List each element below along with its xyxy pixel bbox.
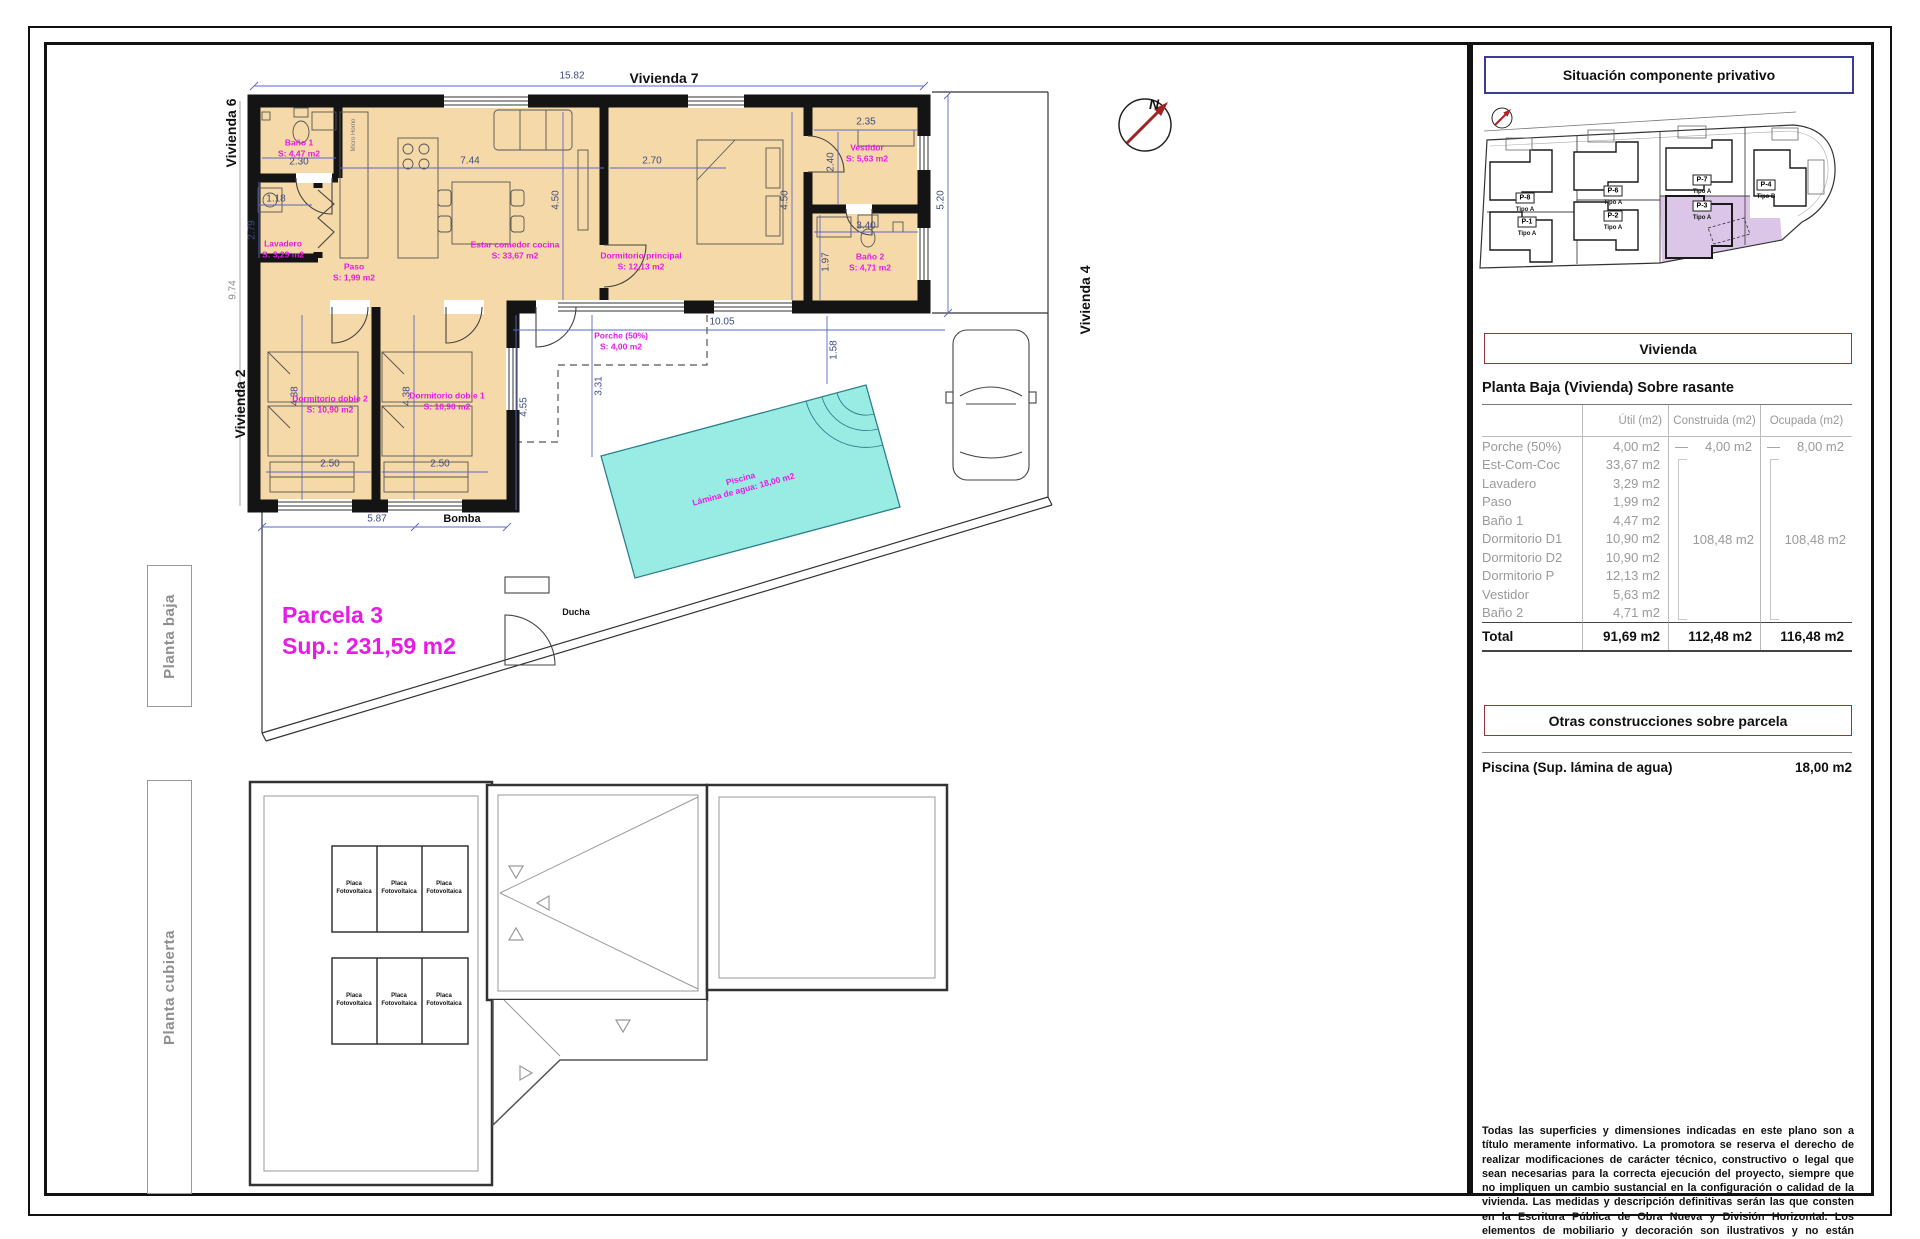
otras-title: Otras construcciones sobre parcela (1549, 713, 1788, 729)
table-row-label: Dormitorio D1 (1482, 530, 1582, 549)
table-header-util: Útil (m2) (1582, 405, 1668, 437)
vivienda-header: Vivienda (1484, 333, 1852, 364)
parcel-tipo-p3: Tipo A (1693, 215, 1711, 221)
pv-line2: Fotovoltaica (336, 1001, 371, 1007)
room-label-bano1: Baño 1S: 4,47 m2 (278, 137, 320, 158)
room-area: S: 33,67 m2 (492, 250, 539, 260)
room-label-porche: Porche (50%)S: 4,00 m2 (594, 330, 648, 351)
table-total-label: Total (1482, 622, 1582, 650)
room-name: Vestidor (850, 142, 884, 152)
pv-line1: Placa (391, 993, 407, 999)
roof-extension (493, 1000, 707, 1125)
pv-line2: Fotovoltaica (381, 889, 416, 895)
table-row-util: 1,99 m2 (1582, 493, 1668, 512)
label-vivienda-7: Vivienda 7 (629, 70, 698, 86)
room-name: Dormitorio doble 2 (292, 393, 368, 403)
room-area: S: 4,71 m2 (849, 262, 891, 272)
room-label-estar: Estar comedor cocinaS: 33,67 m2 (471, 239, 560, 260)
table-header-ocupada: Ocupada (m2) (1760, 405, 1852, 437)
table-row-util: 5,63 m2 (1582, 585, 1668, 604)
room-area: S: 4,00 m2 (600, 341, 642, 351)
room-label-bano2: Baño 2S: 4,71 m2 (849, 251, 891, 272)
ocupada-group-value: 108,48 m2 (1762, 532, 1846, 547)
vivienda-title: Vivienda (1639, 341, 1696, 357)
roof-plan (250, 782, 947, 1185)
table-row-label: Vestidor (1482, 585, 1582, 604)
dim-top: 15.82 (559, 71, 584, 82)
porche-construida: 4,00 m2 (1705, 439, 1752, 454)
planta-baja-tag: Planta baja (147, 565, 192, 707)
north-compass (1119, 99, 1171, 151)
otras-header: Otras construcciones sobre parcela (1484, 705, 1852, 736)
parcela-title: Parcela 3 (282, 602, 383, 629)
parcel-tipo-p8: Tipo A (1516, 207, 1534, 213)
label-vivienda-2: Vivienda 2 (232, 369, 248, 438)
car (946, 330, 1036, 480)
pv-line1: Placa (436, 993, 452, 999)
dim-porche-w: 10.05 (709, 317, 734, 328)
table-row-util: 33,67 m2 (1582, 456, 1668, 475)
table-row-label: Est-Com-Coc (1482, 456, 1582, 475)
pv-line2: Fotovoltaica (381, 1001, 416, 1007)
room-area: S: 3,29 m2 (262, 249, 304, 259)
planta-baja-section-title: Planta Baja (Vivienda) Sobre rasante (1482, 380, 1734, 396)
micro-horno-label: Micro Horno (351, 119, 357, 152)
construida-group-value: 108,48 m2 (1670, 532, 1754, 547)
pv-line2: Fotovoltaica (336, 889, 371, 895)
room-label-lavadero: LavaderoS: 3,29 m2 (262, 238, 304, 259)
room-name: Dormitorio doble 1 (409, 390, 485, 400)
label-vivienda-6: Vivienda 6 (223, 98, 239, 167)
pv-label: PlacaFotovoltaica (336, 993, 371, 1009)
planta-cubierta-text: Planta cubierta (161, 929, 178, 1044)
dim-estar-w: 7.44 (460, 156, 479, 167)
parcel-id-p3: P-3 (1693, 201, 1712, 212)
table-row-ocupada: —8,00 m2 (1760, 437, 1852, 456)
table-row-util: 10,90 m2 (1582, 548, 1668, 567)
label-vivienda-4: Vivienda 4 (1077, 265, 1093, 334)
situacion-title: Situación componente privativo (1563, 67, 1775, 83)
room-name: Lavadero (264, 238, 302, 248)
dim-pool-offset: 1.58 (829, 340, 840, 359)
pv-label: PlacaFotovoltaica (381, 881, 416, 897)
pv-line1: Placa (391, 881, 407, 887)
room-label-dormp: Dormitorio principalS: 12,13 m2 (600, 250, 681, 271)
table-row-util: 4,47 m2 (1582, 511, 1668, 530)
dim-dormp-h: 4.50 (780, 190, 791, 209)
parcel-id-p4: P-4 (1757, 180, 1776, 191)
table-header-construida: Construida (m2) (1668, 405, 1760, 437)
room-name: Estar comedor cocina (471, 239, 560, 249)
dim-dd2-w: 2.50 (320, 459, 339, 470)
parcel-tipo-p6: Tipo A (1604, 200, 1622, 206)
ducha-label: Ducha (562, 607, 590, 617)
pv-line1: Placa (346, 993, 362, 999)
table-row-label: Dormitorio P (1482, 567, 1582, 586)
sitemap-compass (1492, 108, 1512, 128)
dim-dd1-w: 2.50 (430, 459, 449, 470)
otras-divider (1482, 752, 1852, 753)
disclaimer-text: Todas las superficies y dimensiones indi… (1482, 1124, 1854, 1239)
table-header-blank (1482, 405, 1582, 437)
dim-bano2-h: 1.97 (821, 252, 832, 271)
porche-ocupada: 8,00 m2 (1797, 439, 1844, 454)
pv-line2: Fotovoltaica (426, 1001, 461, 1007)
piscina-value: 18,00 m2 (1732, 760, 1852, 775)
pv-label: PlacaFotovoltaica (426, 881, 461, 897)
parcel-id-p2: P-2 (1604, 211, 1623, 222)
planta-baja-text: Planta baja (161, 594, 178, 679)
room-area: S: 4,47 m2 (278, 148, 320, 158)
parcel-tipo-p1: Tipo A (1518, 231, 1536, 237)
table-row-label: Baño 1 (1482, 511, 1582, 530)
areas-table: Útil (m2) Construida (m2) Ocupada (m2) P… (1482, 404, 1852, 652)
dim-porche-h: 3.31 (594, 376, 605, 395)
pv-line1: Placa (436, 881, 452, 887)
dash: — (1675, 439, 1688, 454)
parcel-id-p1: P-1 (1518, 217, 1537, 228)
table-row-util: 12,13 m2 (1582, 567, 1668, 586)
parcel-tipo-p4: Tipo B (1757, 194, 1776, 200)
room-area: S: 12,13 m2 (618, 261, 665, 271)
room-label-dd2: Dormitorio doble 2S: 10,90 m2 (292, 393, 368, 414)
room-area: S: 5,63 m2 (846, 153, 888, 163)
dim-vestidor-w: 2.35 (856, 117, 875, 128)
table-total-ocupada: 116,48 m2 (1760, 622, 1852, 650)
table-row-util: 3,29 m2 (1582, 474, 1668, 493)
table-row-construida: —4,00 m2 (1668, 437, 1760, 456)
pv-line1: Placa (346, 881, 362, 887)
table-row-label: Lavadero (1482, 474, 1582, 493)
parcel-tipo-p2: Tipo A (1604, 225, 1622, 231)
table-row-util: 4,00 m2 (1582, 437, 1668, 456)
room-name: Baño 2 (856, 251, 884, 261)
table-total-util: 91,69 m2 (1582, 622, 1668, 650)
room-name: Paso (344, 261, 364, 271)
dim-bano2-w: 3.40 (856, 221, 875, 232)
dim-lavadero-w: 1.18 (266, 194, 285, 205)
north-label: N (1149, 96, 1159, 112)
dim-right-total: 5.20 (936, 190, 947, 209)
parcela-superficie: Sup.: 231,59 m2 (282, 633, 456, 660)
parcel-id-p6: P-6 (1604, 186, 1623, 197)
dim-wing-h: 4.55 (519, 397, 530, 416)
table-row-util: 10,90 m2 (1582, 530, 1668, 549)
dim-lavadero-h: 2.79 (247, 220, 258, 239)
table-row-util: 4,71 m2 (1582, 604, 1668, 623)
parcel-tipo-p7: Tipo A (1693, 189, 1711, 195)
room-area: S: 10,90 m2 (307, 404, 354, 414)
bomba-label: Bomba (443, 513, 480, 525)
dim-bottom: 5.87 (367, 514, 386, 525)
table-row-label: Baño 2 (1482, 604, 1582, 623)
parcel-id-p7: P-7 (1693, 175, 1712, 186)
pv-label: PlacaFotovoltaica (426, 993, 461, 1009)
room-area: S: 10,90 m2 (424, 401, 471, 411)
plan-sheet: Vivienda 7 Vivienda 6 Vivienda 2 Viviend… (0, 0, 1920, 1239)
dim-left-total: 9.74 (228, 280, 239, 299)
pv-label: PlacaFotovoltaica (381, 993, 416, 1009)
table-total-construida: 112,48 m2 (1668, 622, 1760, 650)
planta-cubierta-tag: Planta cubierta (147, 780, 192, 1194)
dim-dormp-w: 2.70 (642, 156, 661, 167)
garden-items (505, 577, 555, 665)
pv-label: PlacaFotovoltaica (336, 881, 371, 897)
room-name: Porche (50%) (594, 330, 648, 340)
table-row-label: Paso (1482, 493, 1582, 512)
room-label-vestidor: VestidorS: 5,63 m2 (846, 142, 888, 163)
parcel-id-p8: P-8 (1516, 193, 1535, 204)
situacion-header: Situación componente privativo (1484, 56, 1854, 94)
room-label-dd1: Dormitorio doble 1S: 10,90 m2 (409, 390, 485, 411)
table-row-label: Dormitorio D2 (1482, 548, 1582, 567)
piscina-label: Piscina (Sup. lámina de agua) (1482, 760, 1673, 775)
dash: — (1767, 439, 1780, 454)
room-name: Dormitorio principal (600, 250, 681, 260)
room-area: S: 1,99 m2 (333, 272, 375, 282)
dim-estar-h: 4.50 (551, 190, 562, 209)
room-label-paso: PasoS: 1,99 m2 (333, 261, 375, 282)
table-row-label: Porche (50%) (1482, 437, 1582, 456)
room-name: Baño 1 (285, 137, 313, 147)
pv-line2: Fotovoltaica (426, 889, 461, 895)
dim-vestidor-h: 2.40 (826, 152, 837, 171)
